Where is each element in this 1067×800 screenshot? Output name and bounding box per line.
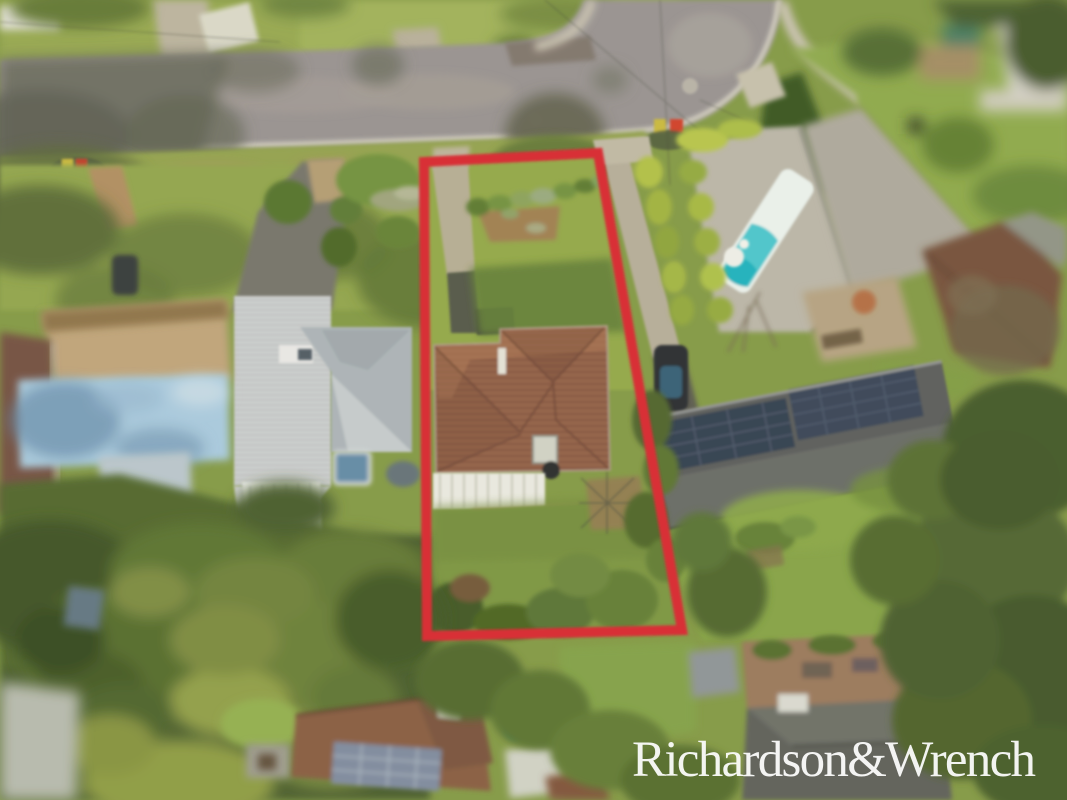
svg-text:Richardson&Wrench: Richardson&Wrench xyxy=(632,732,1036,788)
